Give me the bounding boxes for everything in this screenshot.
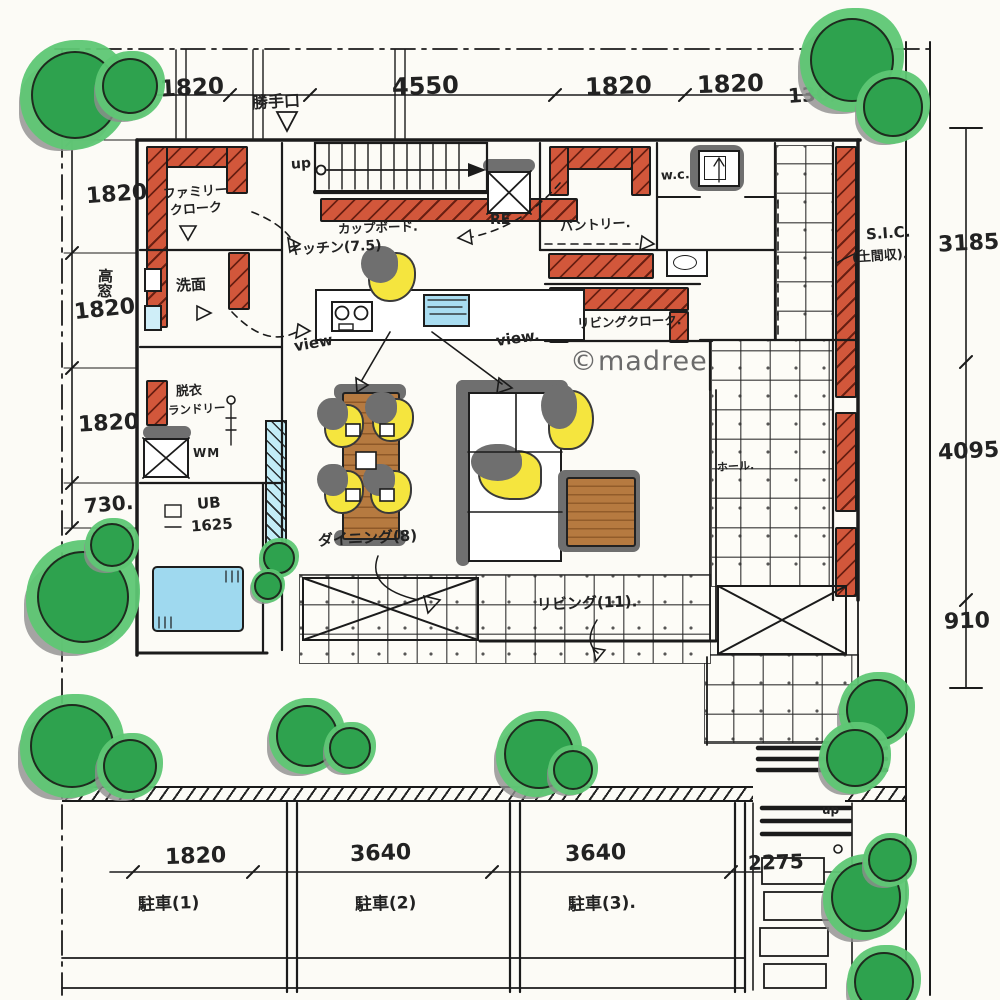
tree (329, 727, 371, 769)
dim-right-2: 4095 (937, 438, 999, 464)
tree (553, 750, 593, 790)
parking-1-label: 駐車(1) (138, 895, 200, 915)
unit-bath-label-2: 1625 (191, 517, 234, 536)
dim-top-2: 4550 (392, 73, 460, 101)
tree (102, 58, 158, 114)
shoe-closet-label-2: (土間収). (852, 248, 909, 266)
wall-pantry-lower-band (548, 253, 654, 279)
hall-label: ホール. (717, 460, 755, 473)
person-figure (548, 390, 594, 450)
wall-right-column-a (835, 146, 857, 398)
wall-washroom-stub (228, 252, 250, 310)
wall-right-column-b (835, 412, 857, 512)
dim-left-1: 1820 (85, 181, 148, 208)
dim-top-3: 1820 (585, 73, 653, 101)
bathtub (152, 566, 244, 632)
living-label: リビング(11). (537, 594, 638, 613)
washing-machine (143, 438, 189, 478)
unit-bath-label-1: UB (196, 495, 221, 512)
dining-label: ダイニング(8) (318, 528, 418, 549)
dim-left-3: 1820 (77, 410, 139, 436)
dim-bottom-1: 1820 (165, 844, 227, 869)
tile-floor-corridor-upper (777, 146, 833, 340)
tile-floor-terrace (300, 575, 710, 663)
wall-family-closet-stub (226, 146, 248, 194)
wall-cupboard-band (320, 198, 578, 222)
wc-label: w.c. (661, 168, 690, 183)
wall-pantry-left-stub (549, 146, 569, 196)
undress-label-2: ランドリー (168, 402, 226, 417)
dim-bottom-3: 3640 (565, 841, 627, 866)
wall-family-closet-left (146, 146, 168, 328)
kitchen-sink (423, 294, 470, 327)
person-figure (478, 450, 542, 500)
washroom-label: 洗面 (176, 277, 207, 294)
tree (90, 523, 134, 567)
dim-bottom-2: 3640 (350, 841, 412, 866)
washroom-window-2 (144, 305, 162, 331)
dim-top-1: 1820 (159, 74, 224, 101)
watermark: ©madree (570, 348, 708, 376)
floor-plan-canvas: 1820 勝手口 4550 1820 1820 1365 1820 1820 高… (0, 0, 1000, 1000)
tree (854, 952, 914, 1000)
stove-icon (331, 301, 373, 332)
tree (863, 77, 923, 137)
family-closet-label-2: クローク (170, 201, 223, 218)
stairs-up-label: up (291, 156, 312, 172)
tree (868, 838, 912, 882)
dim-top-4: 1820 (697, 71, 765, 99)
fridge-box (487, 171, 531, 214)
tree (826, 729, 884, 787)
wall-laundry-stub (146, 380, 168, 426)
entry-up-label: up (822, 804, 839, 817)
cupboard-label: カップボード. (338, 220, 418, 236)
family-closet-label-1: ファミリー (163, 184, 229, 202)
dim-bottom-4: 2275 (748, 851, 804, 874)
dim-left-2: 1820 (73, 295, 136, 324)
dim-right-1: 3185 (937, 230, 999, 256)
dim-left-4: 730. (83, 492, 134, 517)
person-figure (370, 470, 412, 514)
living-closet-label: リビングクローク. (577, 313, 682, 330)
hall-washbasin-bowl (673, 255, 697, 270)
toilet-tank (704, 156, 726, 180)
fridge-label: RE (490, 213, 510, 228)
parking-3-label: 駐車(3). (568, 895, 636, 915)
parking-2-label: 駐車(2) (355, 895, 417, 915)
tree (103, 739, 157, 793)
coffee-table (566, 477, 636, 547)
back-door-label: 勝手口 (252, 93, 301, 112)
washroom-window-1 (144, 268, 162, 292)
view-left-label: view (293, 333, 334, 355)
high-window-label: 高窓 (95, 268, 112, 299)
shrub (254, 572, 282, 600)
site-edge-hatch-left (62, 786, 753, 802)
undress-label-1: 脱衣 (176, 384, 203, 399)
dim-right-3: 910 (944, 609, 991, 634)
shoe-closet-label-1: S.I.C. (866, 224, 911, 243)
wall-right-column-c (835, 527, 857, 597)
person-figure (372, 398, 414, 442)
pantry-label: パントリー. (560, 217, 631, 234)
view-right-label: view. (495, 328, 540, 350)
washing-machine-label: WM (193, 447, 220, 460)
wall-pantry-right-stub (631, 146, 651, 196)
